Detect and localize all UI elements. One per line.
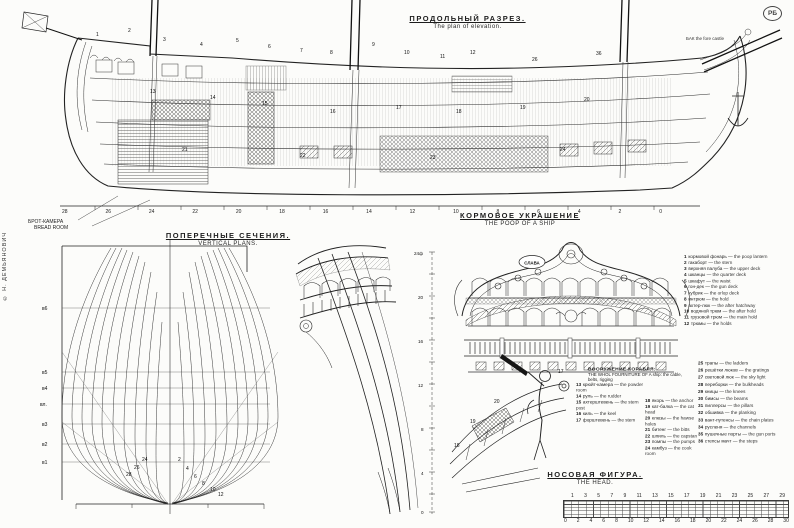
scale-number: 28 bbox=[768, 519, 774, 524]
legend-item: 22шпиль — the capstan bbox=[645, 433, 703, 438]
waterlines bbox=[62, 308, 270, 462]
legend-item: 11грузовой трюм — the main hold bbox=[684, 315, 793, 320]
svg-text:24ф: 24ф bbox=[414, 251, 423, 256]
legend-item: 33вант-путенсы — the chain plates bbox=[698, 417, 794, 423]
scale-number: 20 bbox=[706, 519, 712, 524]
stem-scroll bbox=[559, 381, 569, 391]
scale-number: 17 bbox=[684, 494, 690, 499]
scale-number: 16 bbox=[674, 519, 680, 524]
legend-item: 25трапы — the ladders bbox=[698, 360, 794, 366]
legend-item: 36степсы мачт — the steps bbox=[698, 438, 794, 444]
scale-number: 11 bbox=[637, 494, 642, 499]
sword-blade bbox=[500, 354, 528, 376]
scale-number: 22 bbox=[721, 519, 727, 524]
scale-number: 7 bbox=[610, 494, 613, 499]
svg-text:в6: в6 bbox=[42, 306, 48, 312]
bread-room-label: БРОТ-КАМЕРА BREAD ROOM bbox=[28, 219, 98, 231]
scale-number: 27 bbox=[764, 494, 770, 499]
svg-text:в4: в4 bbox=[42, 386, 48, 392]
scale-number: 10 bbox=[628, 519, 634, 524]
legend-item: 29кницы — the knees bbox=[698, 388, 794, 394]
legend-item: 30бимсы — the beams bbox=[698, 395, 794, 401]
svg-text:вл.: вл. bbox=[40, 402, 47, 408]
height-ruler: 24ф 20 16 12 8 4 0 bbox=[414, 251, 435, 515]
legend-item: 7кубрик — the orlop deck bbox=[684, 290, 793, 295]
svg-text:12: 12 bbox=[418, 383, 424, 388]
frame-number: 2 bbox=[619, 209, 622, 215]
svg-text:20: 20 bbox=[418, 295, 424, 300]
window-row-1 bbox=[468, 278, 674, 298]
legend-item: 31пиллерсы — the pillars bbox=[698, 402, 794, 408]
legend-item: 10водяной трюм — the after hold bbox=[684, 308, 793, 313]
scale-number: 0 bbox=[564, 519, 567, 524]
svg-text:в2: в2 bbox=[42, 442, 48, 448]
frame-number: 20 bbox=[236, 209, 242, 215]
scale-grid bbox=[563, 500, 789, 518]
legend-item: 6гон-дек — the gun deck bbox=[684, 284, 793, 289]
frame-number: 26 bbox=[105, 209, 111, 215]
legend-item: 4шканцы — the quarter deck bbox=[684, 272, 793, 277]
scale-number: 5 bbox=[597, 494, 600, 499]
scale-number: 8 bbox=[615, 519, 618, 524]
frame-number: 14 bbox=[366, 209, 372, 215]
scale-number: 6 bbox=[602, 519, 605, 524]
legend-item: 19кат-балка — the cat head bbox=[645, 404, 703, 415]
legend-item: 28переборки — the bulkheads bbox=[698, 381, 794, 387]
section-curves-right bbox=[172, 248, 278, 504]
svg-text:в5: в5 bbox=[42, 370, 48, 376]
svg-text:0: 0 bbox=[421, 510, 424, 515]
scale-number: 30 bbox=[783, 519, 789, 524]
scale-number: 19 bbox=[700, 494, 706, 499]
scale-number: 3 bbox=[584, 494, 587, 499]
legend-item: 18якорь — the anchor bbox=[645, 398, 703, 403]
scale-number: 4 bbox=[590, 519, 593, 524]
legend-item: 27световой люк — the sky light bbox=[698, 374, 794, 380]
legend-group-b: 13крюйт-камера — the powder room 14руль … bbox=[576, 382, 648, 453]
frame-number: 12 bbox=[410, 209, 416, 215]
bow-note-label: БАК the fore castle bbox=[686, 36, 724, 41]
legend-group-d: 25трапы — the ladders 26решётки люков — … bbox=[698, 360, 794, 506]
scale-number: 14 bbox=[659, 519, 665, 524]
stern-flag bbox=[22, 12, 48, 32]
legend-item: 16киль — the keel bbox=[576, 411, 648, 416]
poop-title: КОРМОВОЕ УКРАШЕНИЕ THE POOP OF A SHIP bbox=[445, 212, 595, 228]
gallery-balusters bbox=[304, 290, 385, 316]
publisher-monogram: РБ bbox=[763, 6, 782, 21]
svg-text:в1: в1 bbox=[42, 460, 48, 466]
scale-number: 15 bbox=[668, 494, 674, 499]
scale-number: 9 bbox=[624, 494, 627, 499]
crown-outline bbox=[462, 243, 680, 317]
legend-item: 3верхняя палуба — the upper deck bbox=[684, 266, 793, 271]
frame-number: 24 bbox=[149, 209, 155, 215]
scale-number: 12 bbox=[643, 519, 649, 524]
head-grating bbox=[472, 408, 514, 442]
quarter-gallery-drawing: 24ф 20 16 12 8 4 0 bbox=[292, 222, 460, 524]
legend-item: 15ахтерштевень — the stern post bbox=[576, 400, 648, 411]
legend-item: 13крюйт-камера — the powder room bbox=[576, 382, 648, 393]
ship-name: СЛАВА bbox=[524, 261, 540, 266]
scale-number: 26 bbox=[752, 519, 758, 524]
name-plate: СЛАВА bbox=[519, 256, 545, 269]
warrior-figure bbox=[500, 354, 551, 460]
legend-item: 2гакаборт — the stern bbox=[684, 260, 793, 265]
head-title: НОСОВАЯ ФИГУРА. THE HEAD. bbox=[540, 471, 650, 487]
legend-item: 8интрюм — the hold bbox=[684, 296, 793, 301]
legend-item: 24камбуз — the cook room bbox=[645, 445, 703, 456]
legend-group-c: 18якорь — the anchor 19кат-балка — the c… bbox=[645, 398, 703, 499]
elevation-title-en: The plan of elevation. bbox=[385, 24, 550, 31]
legend-item: 9ахтер-люк — the after hatchway bbox=[684, 302, 793, 307]
scale-numbers-bottom: 024681012141618202224262830 bbox=[563, 518, 789, 524]
frame-number: 18 bbox=[279, 209, 285, 215]
sections-title: ПОПЕРЕЧНЫЕ СЕЧЕНИЯ. VERTICAL PLANS. bbox=[158, 232, 298, 248]
stern-decoration-drawing: СЛАВА bbox=[448, 224, 696, 376]
copyright-text: © Н. ДЕМЬЯНОВИЧ bbox=[2, 232, 8, 300]
elevation-title-ru: ПРОДОЛЬНЫЙ РАЗРЕЗ. bbox=[385, 15, 550, 24]
frame-number: 16 bbox=[323, 209, 329, 215]
carved-band-middle bbox=[466, 298, 676, 304]
masts bbox=[46, 0, 782, 72]
svg-text:16: 16 bbox=[418, 339, 424, 344]
legend-item: 23помпы — the pumps bbox=[645, 439, 703, 444]
svg-text:в3: в3 bbox=[42, 422, 48, 428]
svg-text:4: 4 bbox=[421, 471, 424, 476]
legend-item: 32обшивка — the planking bbox=[698, 409, 794, 415]
legend-item: 14руль — the rudder bbox=[576, 394, 648, 399]
scale-number: 25 bbox=[748, 494, 754, 499]
graphic-scale-bar: 1357911131517192123252729 02468101214161… bbox=[563, 494, 789, 524]
legend-item: 12трюмы — the holds bbox=[684, 321, 793, 326]
scale-number: 23 bbox=[732, 494, 738, 499]
legend-item: 26решётки люков — the gratings bbox=[698, 367, 794, 373]
ship-blueprint-page: 1234567891011122636131415161718192021222… bbox=[0, 0, 794, 528]
frame-number: 28 bbox=[62, 209, 68, 215]
svg-text:8: 8 bbox=[421, 427, 424, 432]
scale-number: 13 bbox=[652, 494, 658, 499]
scale-number: 24 bbox=[737, 519, 743, 524]
section-curves-left bbox=[62, 248, 168, 504]
legend-item: 1кормовой фонарь — the poop lantern bbox=[684, 254, 793, 259]
legend-item: 17форштевень — the stem bbox=[576, 417, 648, 422]
legend-item: 35пушечные порты — the gun ports bbox=[698, 431, 794, 437]
longitudinal-section-drawing bbox=[0, 0, 794, 232]
scale-number: 1 bbox=[571, 494, 574, 499]
body-plan-drawing: в6 в5 в4 вл. в3 в2 в1 bbox=[12, 232, 302, 528]
balustrade bbox=[464, 338, 678, 358]
legend-item: 20клюзы — the hawse holes bbox=[645, 416, 703, 427]
scale-number: 29 bbox=[779, 494, 785, 499]
legend-group-a: 1кормовой фонарь — the poop lantern 2гак… bbox=[684, 254, 794, 320]
scale-number: 21 bbox=[716, 494, 722, 499]
scale-number: 18 bbox=[690, 519, 696, 524]
legend-item: 21битенг — the bitts bbox=[645, 427, 703, 432]
scale-number: 2 bbox=[577, 519, 580, 524]
legend-item: 34русленя — the channels bbox=[698, 424, 794, 430]
ensign-staff bbox=[46, 28, 82, 40]
anchor bbox=[728, 92, 748, 126]
frame-number: 0 bbox=[659, 209, 662, 215]
elevation-title: ПРОДОЛЬНЫЙ РАЗРЕЗ. The plan of elevation… bbox=[385, 15, 550, 31]
waterline-labels: в6 в5 в4 вл. в3 в2 в1 bbox=[40, 306, 48, 466]
legend-item: 5шкафут — the waist bbox=[684, 278, 793, 283]
frame-number: 22 bbox=[192, 209, 198, 215]
